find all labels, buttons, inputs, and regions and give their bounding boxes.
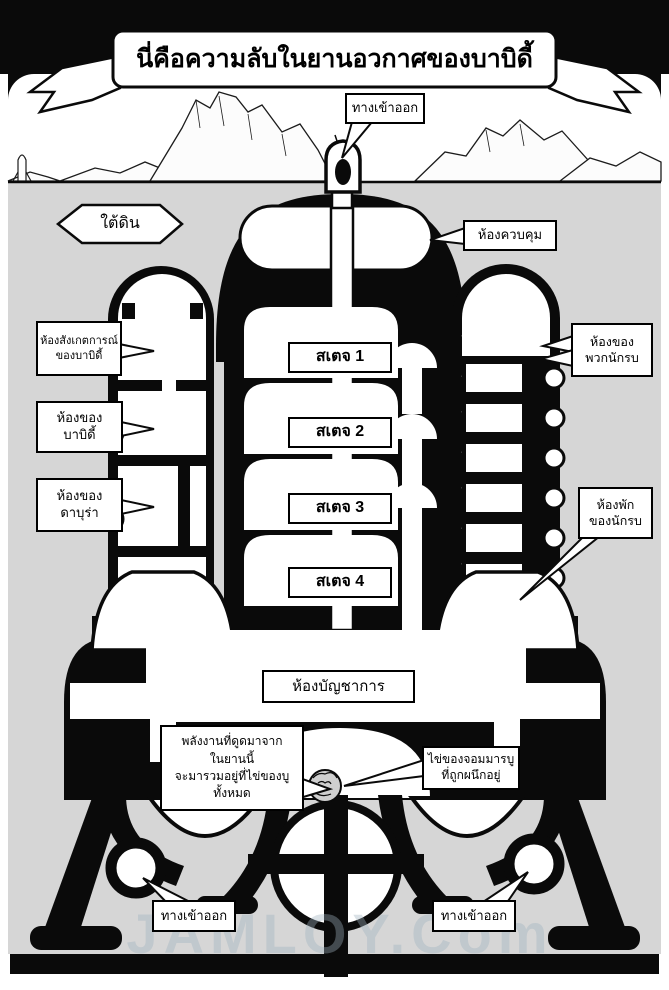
label-warriors-quarters: ห้องพัก ของนักรบ xyxy=(578,487,653,539)
label-dabura-room: ห้องของ ดาบุร่า xyxy=(36,478,123,532)
label-observation-room: ห้องสังเกตการณ์ ของบาบิดี้ xyxy=(36,321,122,376)
label-babidi-room: ห้องของ บาบิดี้ xyxy=(36,401,123,453)
page-title: นี่คือความลับในยานอวกาศของบาบิดี้ xyxy=(113,31,556,87)
label-control-room: ห้องควบคุม xyxy=(463,220,557,251)
center-pole xyxy=(324,795,348,977)
label-stage-4: สเตจ 4 xyxy=(288,567,392,598)
label-stage-1: สเตจ 1 xyxy=(288,342,392,373)
label-underground: ใต้ดิน xyxy=(58,205,182,243)
label-entrance-top: ทางเข้าออก xyxy=(345,93,425,124)
label-energy-note: พลังงานที่ดูดมาจาก ในยานนี้ จะมารวมอยู่ท… xyxy=(160,725,304,811)
label-stage-3: สเตจ 3 xyxy=(288,493,392,524)
label-entrance-bottom-right: ทางเข้าออก xyxy=(432,900,516,932)
page-bottom-bar xyxy=(10,954,659,974)
manga-page: JAMLOY.Com นี่คือความลับในยานอวกาศของบาบ… xyxy=(0,0,669,990)
label-warriors-room: ห้องของ พวกนักรบ xyxy=(571,323,653,377)
label-entrance-bottom-left: ทางเข้าออก xyxy=(152,900,236,932)
label-stage-2: สเตจ 2 xyxy=(288,417,392,448)
label-command-room: ห้องบัญชาการ xyxy=(262,670,415,703)
label-buu-egg: ไข่ของจอมมารบู ที่ถูกผนึกอยู่ xyxy=(422,746,520,790)
